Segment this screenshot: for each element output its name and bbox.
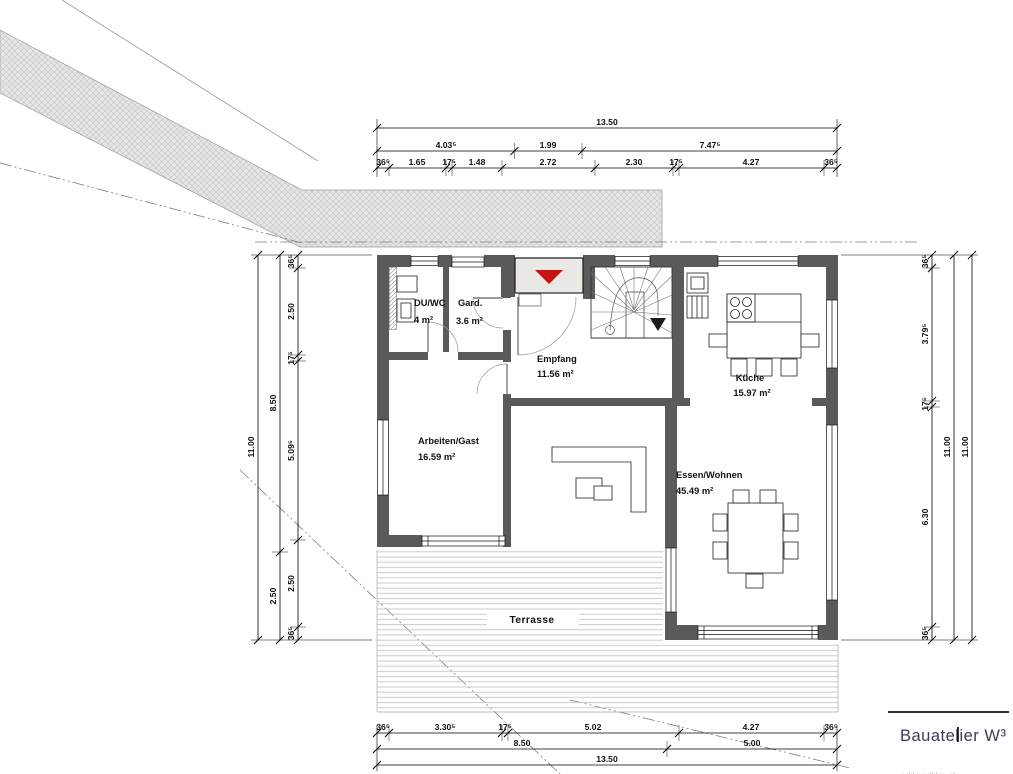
dim-label: 3.30⁵ bbox=[435, 722, 456, 732]
dim-label: 1.48 bbox=[469, 157, 486, 167]
dim-label: 17⁵ bbox=[920, 397, 930, 411]
stair-direction-arrow-icon bbox=[650, 318, 666, 331]
dim-label: 4.03⁵ bbox=[436, 140, 457, 150]
dim-label: 36⁵ bbox=[376, 157, 390, 167]
dims-top: 13.50 4.03⁵ 1.99 7.47⁵ 36⁵ 1.65 17⁵ 1.48… bbox=[373, 117, 841, 177]
room-label-duwc: DU/WC bbox=[414, 298, 446, 308]
dims-bottom: 36⁵ 3.30⁵ 17⁵ 5.02 4.27 36⁵ 8.50 5.00 13… bbox=[373, 722, 841, 771]
staircase bbox=[591, 267, 672, 338]
dim-label: 3.79⁵ bbox=[920, 324, 930, 345]
wall-segment bbox=[826, 255, 838, 300]
wall-segment bbox=[511, 398, 690, 406]
sofa bbox=[552, 447, 646, 512]
shower-strip bbox=[390, 268, 397, 330]
dim-label: 5.02 bbox=[585, 722, 602, 732]
entrance-step bbox=[519, 294, 541, 306]
dim-label: 17⁵ bbox=[669, 157, 683, 167]
window-left-arbeiten bbox=[378, 420, 389, 495]
window-top-stairs bbox=[615, 257, 650, 266]
wall-segment bbox=[672, 255, 684, 404]
dim-label: 1.65 bbox=[409, 157, 426, 167]
dim-label: 1.99 bbox=[540, 140, 557, 150]
logo-cursor-mark bbox=[957, 727, 959, 742]
window-left-essen bbox=[666, 548, 676, 612]
wc-fixture bbox=[397, 299, 415, 322]
dim-label: 36⁵ bbox=[376, 722, 390, 732]
wall-segment bbox=[484, 255, 501, 267]
dim-label: 6.30 bbox=[920, 508, 930, 525]
dim-label: 4.27 bbox=[743, 722, 760, 732]
room-label-arbeiten: Arbeiten/Gast bbox=[418, 436, 479, 446]
dim-label: 13.50 bbox=[596, 754, 618, 764]
window-right-essen bbox=[827, 425, 838, 600]
wall-segment bbox=[684, 255, 718, 267]
window-bottom-arbeiten bbox=[422, 536, 505, 546]
room-area-arbeiten: 16.59 m² bbox=[418, 452, 455, 462]
wall-segment bbox=[583, 255, 595, 299]
window-top-kueche bbox=[718, 257, 798, 266]
wall-segment bbox=[826, 600, 838, 640]
dim-label: 2.72 bbox=[540, 157, 557, 167]
dim-label: 36⁵ bbox=[824, 157, 838, 167]
dim-label: 2.50 bbox=[286, 303, 296, 320]
kitchen-appliances bbox=[687, 273, 708, 318]
wall-segment bbox=[503, 330, 511, 362]
room-area-gard: 3.6 m² bbox=[456, 316, 483, 326]
dim-labels-left: 36⁵ 2.50 17⁵ 5.09⁵ 2.50 36⁵ 8.50 2.50 11… bbox=[246, 255, 296, 641]
dim-label: 2.50 bbox=[268, 587, 278, 604]
dims-right: 36⁵ 3.79⁵ 17⁵ 6.30 36⁵ 11.00 11.00 bbox=[841, 251, 978, 644]
washbasin bbox=[397, 276, 417, 292]
window-right-kueche bbox=[827, 300, 838, 368]
dim-label: 7.47⁵ bbox=[700, 140, 721, 150]
dim-label: 11.00 bbox=[942, 436, 952, 457]
arbeiten-door bbox=[477, 364, 507, 394]
room-label-gard: Gard. bbox=[458, 298, 482, 308]
wall-segment bbox=[503, 267, 511, 298]
dim-label: 8.50 bbox=[268, 394, 278, 411]
dim-label: 36⁵ bbox=[286, 255, 296, 269]
dim-labels-top: 13.50 4.03⁵ 1.99 7.47⁵ 36⁵ 1.65 17⁵ 1.48… bbox=[376, 117, 838, 167]
dim-label: 11.00 bbox=[246, 436, 256, 457]
wall-segment bbox=[438, 255, 452, 267]
dim-label: 13.50 bbox=[596, 117, 618, 127]
floor-plan-drawing: Terrasse bbox=[0, 0, 1013, 774]
window-top-duwc bbox=[411, 257, 438, 266]
wall-segment bbox=[389, 352, 428, 360]
wall-segment bbox=[650, 255, 672, 267]
dim-label: 36⁵ bbox=[824, 722, 838, 732]
dining-set bbox=[713, 490, 798, 588]
logo-text: Bauatelier W³ bbox=[900, 727, 1006, 745]
dims-left: 36⁵ 2.50 17⁵ 5.09⁵ 2.50 36⁵ 8.50 2.50 11… bbox=[246, 251, 372, 644]
doors bbox=[428, 297, 576, 394]
room-label-terrasse: Terrasse bbox=[510, 615, 555, 626]
room-label-essen: Essen/Wohnen bbox=[676, 470, 743, 480]
room-area-kueche: 15.97 m² bbox=[733, 388, 770, 398]
dim-label: 17⁵ bbox=[442, 157, 456, 167]
window-bottom-essen bbox=[698, 626, 818, 639]
dim-labels-right: 36⁵ 3.79⁵ 17⁵ 6.30 36⁵ 11.00 11.00 bbox=[920, 255, 970, 641]
wall-segment bbox=[377, 255, 389, 420]
wall-segment bbox=[665, 625, 698, 640]
wall-segment bbox=[503, 394, 511, 547]
dim-label: 4.27 bbox=[743, 157, 760, 167]
wall-segment bbox=[443, 267, 449, 352]
terrace-deck bbox=[663, 644, 838, 712]
logo-block: Bauatelier W³ ı.ılıl.ı ıı.ıllıl.ıı ..ıl bbox=[888, 712, 1009, 774]
terrace-deck bbox=[377, 550, 663, 712]
kitchen-island bbox=[709, 294, 819, 376]
room-label-empfang: Empfang bbox=[537, 354, 577, 364]
room-area-essen: 45.49 m² bbox=[676, 486, 713, 496]
window-top-gard bbox=[452, 257, 484, 267]
wall-segment bbox=[377, 535, 422, 547]
dim-label: 36⁵ bbox=[920, 627, 930, 641]
dim-label: 2.50 bbox=[286, 575, 296, 592]
room-area-duwc: 4 m² bbox=[414, 315, 433, 325]
room-labels: DU/WC 4 m² Gard. 3.6 m² Empfang 11.56 m²… bbox=[414, 298, 771, 496]
room-label-kueche: Küche bbox=[736, 373, 764, 383]
entrance-porch bbox=[515, 258, 583, 306]
hatched-band bbox=[0, 30, 662, 247]
dim-label: 17⁵ bbox=[498, 722, 512, 732]
wall-segment bbox=[826, 368, 838, 425]
dim-label: 2.30 bbox=[626, 157, 643, 167]
dim-label: 8.50 bbox=[514, 738, 531, 748]
dim-label: 17⁵ bbox=[286, 351, 296, 365]
dim-label: 36⁵ bbox=[286, 627, 296, 641]
dim-label: 5.09⁵ bbox=[286, 440, 296, 461]
dim-labels-bottom: 36⁵ 3.30⁵ 17⁵ 5.02 4.27 36⁵ 8.50 5.00 13… bbox=[376, 722, 838, 764]
dim-label: 36⁵ bbox=[920, 255, 930, 269]
floor-plan-page: Terrasse bbox=[0, 0, 1013, 774]
dim-label: 5.00 bbox=[744, 738, 761, 748]
dim-label: 11.00 bbox=[960, 436, 970, 457]
room-area-empfang: 11.56 m² bbox=[537, 369, 574, 379]
